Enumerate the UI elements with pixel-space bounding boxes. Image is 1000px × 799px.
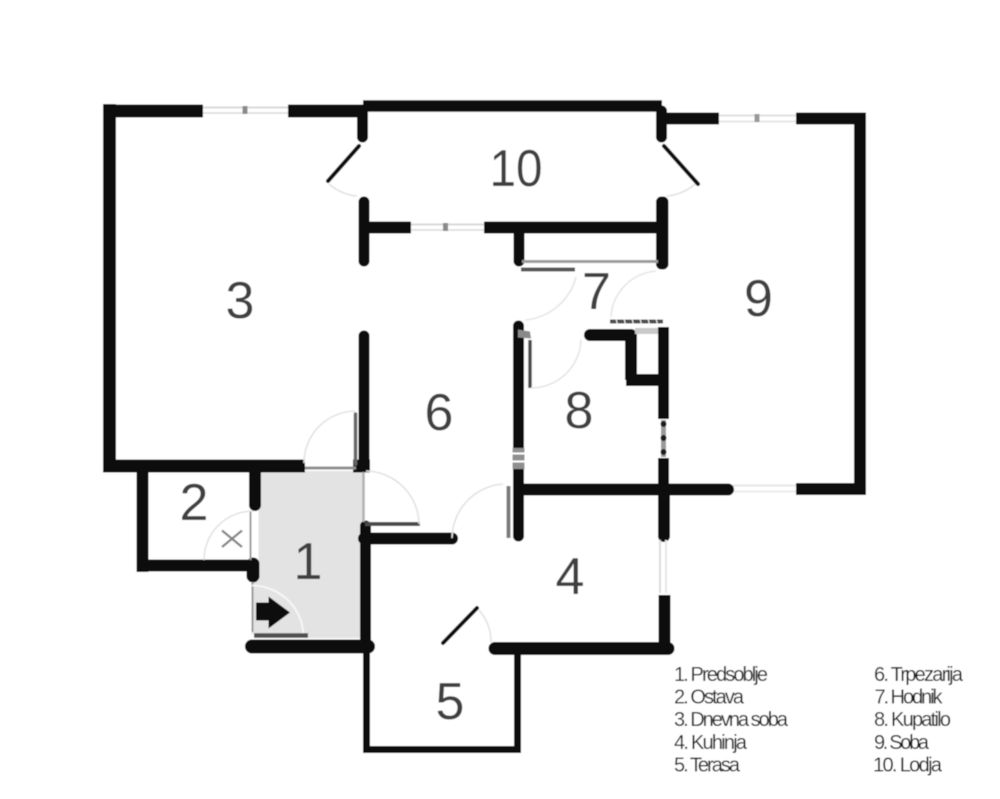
svg-text:10: 10 [490,140,543,198]
svg-text:1. Predsoblje: 1. Predsoblje [674,664,768,686]
svg-text:3. Dnevna soba: 3. Dnevna soba [674,709,789,731]
svg-text:10. Lodja: 10. Lodja [873,754,943,776]
svg-text:9. Soba: 9. Soba [874,732,930,754]
svg-text:7: 7 [582,263,611,321]
svg-text:6: 6 [425,384,454,442]
svg-text:2: 2 [180,474,209,532]
svg-text:3: 3 [226,272,255,330]
svg-text:7. Hodnik: 7. Hodnik [875,687,944,709]
svg-text:4. Kuhinja: 4. Kuhinja [674,732,748,754]
svg-text:2. Ostava: 2. Ostava [674,687,745,709]
svg-text:1: 1 [294,533,323,591]
svg-text:6. Trpezarija: 6. Trpezarija [874,664,964,686]
svg-text:5: 5 [436,673,465,731]
svg-text:9: 9 [744,270,773,328]
svg-text:8. Kupatilo: 8. Kupatilo [874,709,951,731]
svg-text:8: 8 [565,382,594,440]
svg-text:4: 4 [556,548,585,606]
svg-text:5. Terasa: 5. Terasa [674,754,741,776]
